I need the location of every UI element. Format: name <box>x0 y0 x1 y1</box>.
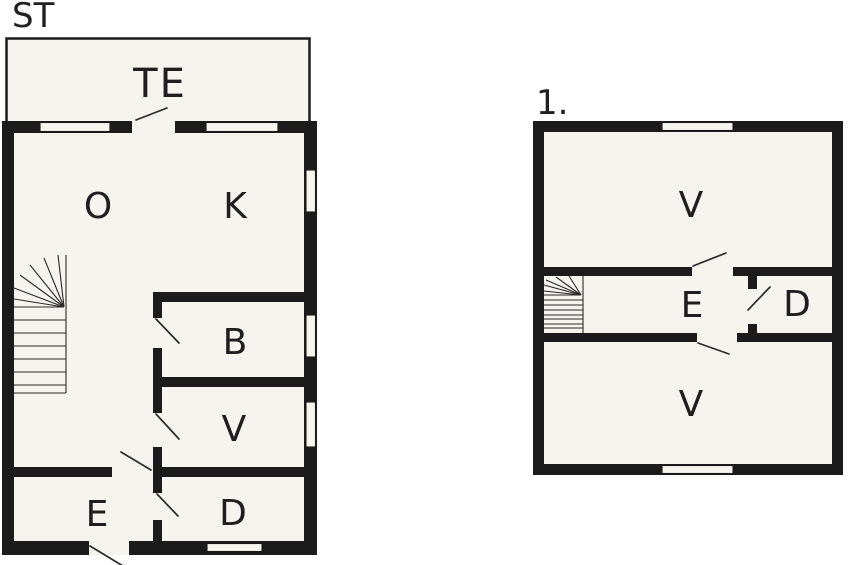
room-label-wc: V <box>222 409 247 450</box>
window-bottom <box>662 466 733 474</box>
window-bathroom <box>306 315 316 357</box>
room-label-entry: E <box>86 494 109 535</box>
room-label-kitchen: K <box>223 186 248 227</box>
wall-landing-closet-seg2 <box>748 324 757 333</box>
wall-wc-d-divider <box>162 467 304 477</box>
window-top <box>662 123 733 131</box>
room-label-closet: D <box>783 284 811 325</box>
room-label-bedroom-upper: V <box>679 185 704 226</box>
wall-corridor-bottom-right <box>737 333 832 342</box>
room-label-terrace: TE <box>132 61 187 107</box>
wall-hall-seg2 <box>153 348 162 413</box>
floorplan-canvas: ST TE <box>0 0 848 565</box>
wall-corridor-top-left <box>543 267 692 276</box>
ground-floor-plan: ST TE <box>2 0 317 565</box>
first-floor-title: 1. <box>536 83 568 123</box>
wall-entry-top <box>2 467 112 477</box>
wall-right <box>832 121 843 475</box>
ground-floor-title: ST <box>12 0 55 36</box>
wall-left <box>533 121 544 475</box>
room-label-living: O <box>84 186 112 227</box>
first-floor-plan: 1. <box>533 83 843 475</box>
wall-hall-seg4 <box>153 520 162 541</box>
wall-left <box>2 121 14 555</box>
wall-bottom <box>2 541 317 555</box>
window-bottom <box>207 544 262 552</box>
wall-bath-wc-divider <box>162 377 304 387</box>
wall-corridor-top-right <box>733 267 832 276</box>
wall-hall-seg1 <box>153 292 162 318</box>
entrance-door-gap <box>89 541 129 555</box>
room-label-d: D <box>219 493 247 534</box>
window-wc <box>306 402 316 447</box>
wall-hall-seg3 <box>153 447 162 493</box>
wall-bathroom-top <box>153 292 304 302</box>
wall-corridor-bottom-left <box>543 333 697 342</box>
window-kitchen <box>306 170 316 212</box>
window-top-left <box>40 123 110 132</box>
room-label-bathroom: B <box>223 322 248 363</box>
window-top-right <box>206 123 278 132</box>
room-label-bedroom-lower: V <box>679 384 704 425</box>
floorplan-page: ST TE <box>0 0 848 565</box>
wall-landing-closet-seg1 <box>748 276 757 289</box>
terrace-door-gap <box>132 121 175 133</box>
room-label-landing: E <box>681 285 704 326</box>
